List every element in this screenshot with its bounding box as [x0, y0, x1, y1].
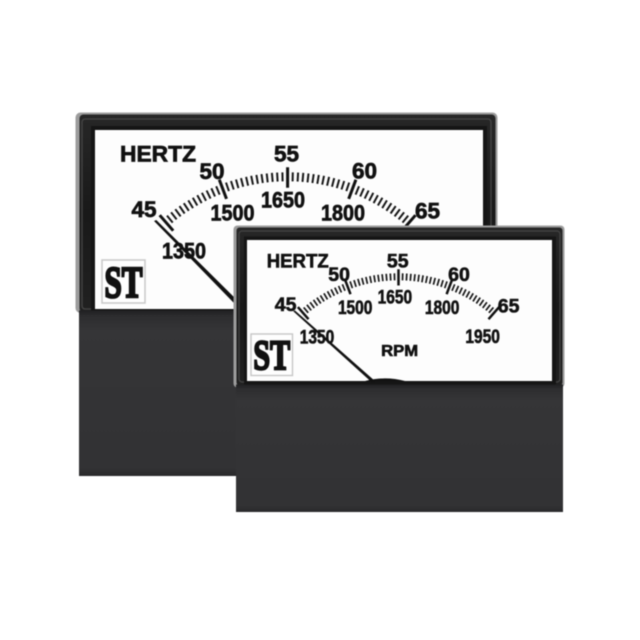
svg-text:1800: 1800: [321, 201, 365, 226]
svg-text:65: 65: [498, 295, 520, 317]
svg-text:1650: 1650: [261, 188, 305, 213]
svg-text:RPM: RPM: [381, 343, 418, 360]
svg-text:55: 55: [387, 250, 409, 272]
svg-text:HERTZ: HERTZ: [120, 142, 196, 167]
svg-text:60: 60: [352, 159, 377, 184]
svg-text:55: 55: [274, 142, 299, 167]
svg-text:45: 45: [131, 197, 156, 222]
svg-text:1950: 1950: [465, 327, 500, 348]
svg-text:60: 60: [448, 264, 470, 286]
svg-text:1800: 1800: [425, 298, 460, 319]
svg-text:45: 45: [275, 294, 297, 316]
svg-text:50: 50: [199, 159, 224, 184]
svg-text:65: 65: [415, 199, 440, 224]
svg-text:1500: 1500: [338, 298, 373, 319]
svg-text:1500: 1500: [211, 201, 255, 226]
svg-text:HERTZ: HERTZ: [267, 250, 329, 272]
svg-text:50: 50: [328, 264, 350, 286]
svg-text:1650: 1650: [378, 288, 413, 309]
